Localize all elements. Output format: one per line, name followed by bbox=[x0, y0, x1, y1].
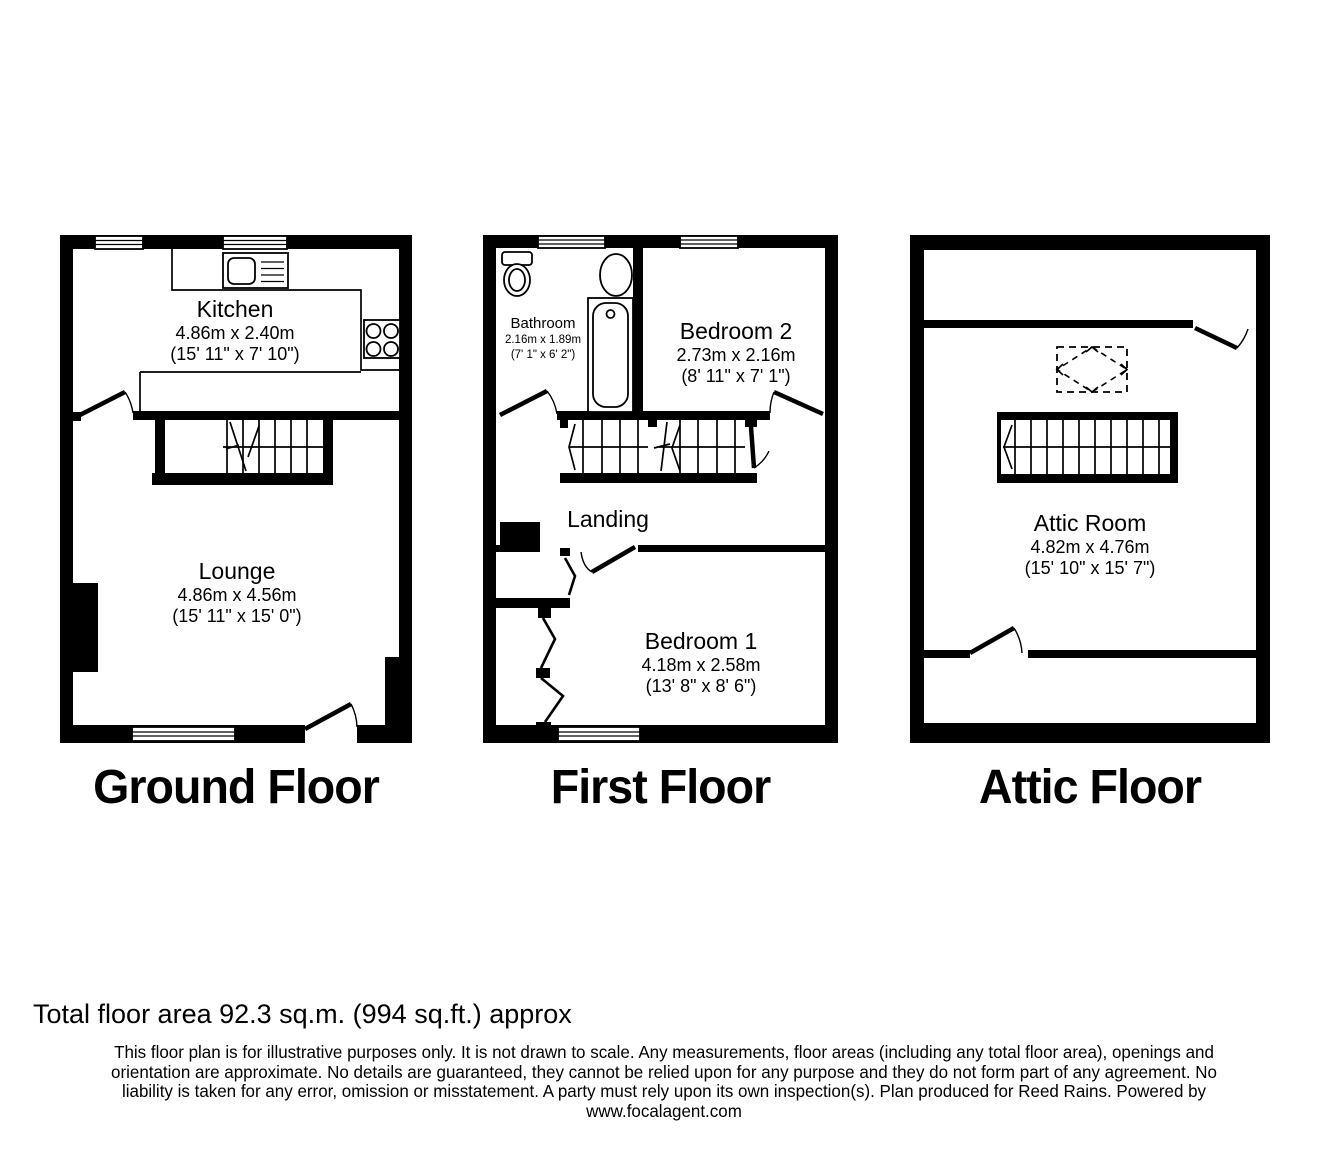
disclaimer: This floor plan is for illustrative purp… bbox=[20, 1043, 1308, 1121]
attic-floor-drawing bbox=[910, 235, 1270, 743]
room-name: Bathroom bbox=[493, 315, 593, 333]
stairs bbox=[223, 420, 323, 473]
disclaimer-line: www.focalagent.com bbox=[20, 1102, 1308, 1122]
room-dims-metric: 4.18m x 2.58m bbox=[601, 655, 801, 676]
cupboard-folding-doors bbox=[541, 558, 575, 722]
floorplan-page: Kitchen 4.86m x 2.40m (15' 11" x 7' 10")… bbox=[0, 0, 1328, 1151]
hob-icon bbox=[364, 320, 400, 358]
window bbox=[132, 727, 235, 741]
bedroom2-door bbox=[770, 392, 823, 414]
room-name: Kitchen bbox=[115, 295, 355, 323]
kitchen-door bbox=[76, 392, 133, 417]
toilet-icon bbox=[502, 252, 532, 296]
room-dims-metric: 4.86m x 2.40m bbox=[115, 323, 355, 344]
disclaimer-line: liability is taken for any error, omissi… bbox=[20, 1082, 1308, 1102]
disclaimer-line: This floor plan is for illustrative purp… bbox=[20, 1043, 1308, 1063]
room-name: Lounge bbox=[117, 557, 357, 585]
room-dims-imperial: (15' 10" x 15' 7") bbox=[990, 558, 1190, 579]
room-name: Landing bbox=[558, 505, 658, 533]
room-name: Bedroom 2 bbox=[636, 317, 836, 345]
bedroom1-label: Bedroom 1 4.18m x 2.58m (13' 8" x 8' 6") bbox=[601, 627, 801, 697]
first-floor-title: First Floor bbox=[488, 762, 832, 814]
room-dims-imperial: (7' 1" x 6' 2") bbox=[493, 348, 593, 363]
window bbox=[680, 236, 738, 248]
first-floor-plan: Bathroom 2.16m x 1.89m (7' 1" x 6' 2") B… bbox=[483, 235, 838, 743]
stairs bbox=[569, 420, 745, 473]
stairs bbox=[997, 412, 1178, 483]
room-dims-imperial: (15' 11" x 15' 0") bbox=[117, 606, 357, 627]
basin-icon bbox=[600, 254, 632, 296]
bathroom-label: Bathroom 2.16m x 1.89m (7' 1" x 6' 2") bbox=[493, 315, 593, 363]
chimney-breast bbox=[500, 522, 540, 545]
window bbox=[558, 727, 640, 741]
stairs-door bbox=[751, 427, 769, 468]
bedroom2-label: Bedroom 2 2.73m x 2.16m (8' 11" x 7' 1") bbox=[636, 317, 836, 387]
room-dims-imperial: (15' 11" x 7' 10") bbox=[115, 344, 355, 365]
attic-room-door bbox=[970, 628, 1022, 653]
room-dims-metric: 2.73m x 2.16m bbox=[636, 345, 836, 366]
attic-walls bbox=[910, 235, 1270, 743]
ground-floor-title: Ground Floor bbox=[65, 762, 406, 814]
bathroom-door bbox=[500, 391, 557, 415]
room-dims-metric: 4.82m x 4.76m bbox=[990, 537, 1190, 558]
landing-label: Landing bbox=[558, 505, 658, 533]
disclaimer-line: orientation are approximate. No details … bbox=[20, 1063, 1308, 1083]
skylight-icon bbox=[1057, 347, 1127, 392]
room-dims-imperial: (8' 11" x 7' 1") bbox=[636, 366, 836, 387]
window bbox=[223, 236, 287, 249]
chimney-breast bbox=[73, 583, 98, 672]
bedroom1-door bbox=[581, 547, 635, 572]
lounge-label: Lounge 4.86m x 4.56m (15' 11" x 15' 0") bbox=[117, 557, 357, 627]
ground-floor-plan: Kitchen 4.86m x 2.40m (15' 11" x 7' 10")… bbox=[60, 235, 412, 743]
total-floor-area: Total floor area 92.3 sq.m. (994 sq.ft.)… bbox=[33, 998, 572, 1030]
room-dims-metric: 2.16m x 1.89m bbox=[493, 333, 593, 348]
attic-floor-plan: Attic Room 4.82m x 4.76m (15' 10" x 15' … bbox=[910, 235, 1270, 743]
attic-room-label: Attic Room 4.82m x 4.76m (15' 10" x 15' … bbox=[990, 509, 1190, 579]
room-dims-imperial: (13' 8" x 8' 6") bbox=[601, 676, 801, 697]
sink-icon bbox=[223, 253, 288, 288]
room-name: Bedroom 1 bbox=[601, 627, 801, 655]
room-name: Attic Room bbox=[990, 509, 1190, 537]
room-dims-metric: 4.86m x 4.56m bbox=[117, 585, 357, 606]
bath-icon bbox=[588, 298, 633, 412]
attic-top-door bbox=[1195, 328, 1248, 348]
window bbox=[538, 236, 605, 248]
kitchen-label: Kitchen 4.86m x 2.40m (15' 11" x 7' 10") bbox=[115, 295, 355, 365]
attic-floor-title: Attic Floor bbox=[915, 762, 1264, 814]
window bbox=[95, 236, 143, 249]
wall-pier bbox=[385, 657, 412, 727]
